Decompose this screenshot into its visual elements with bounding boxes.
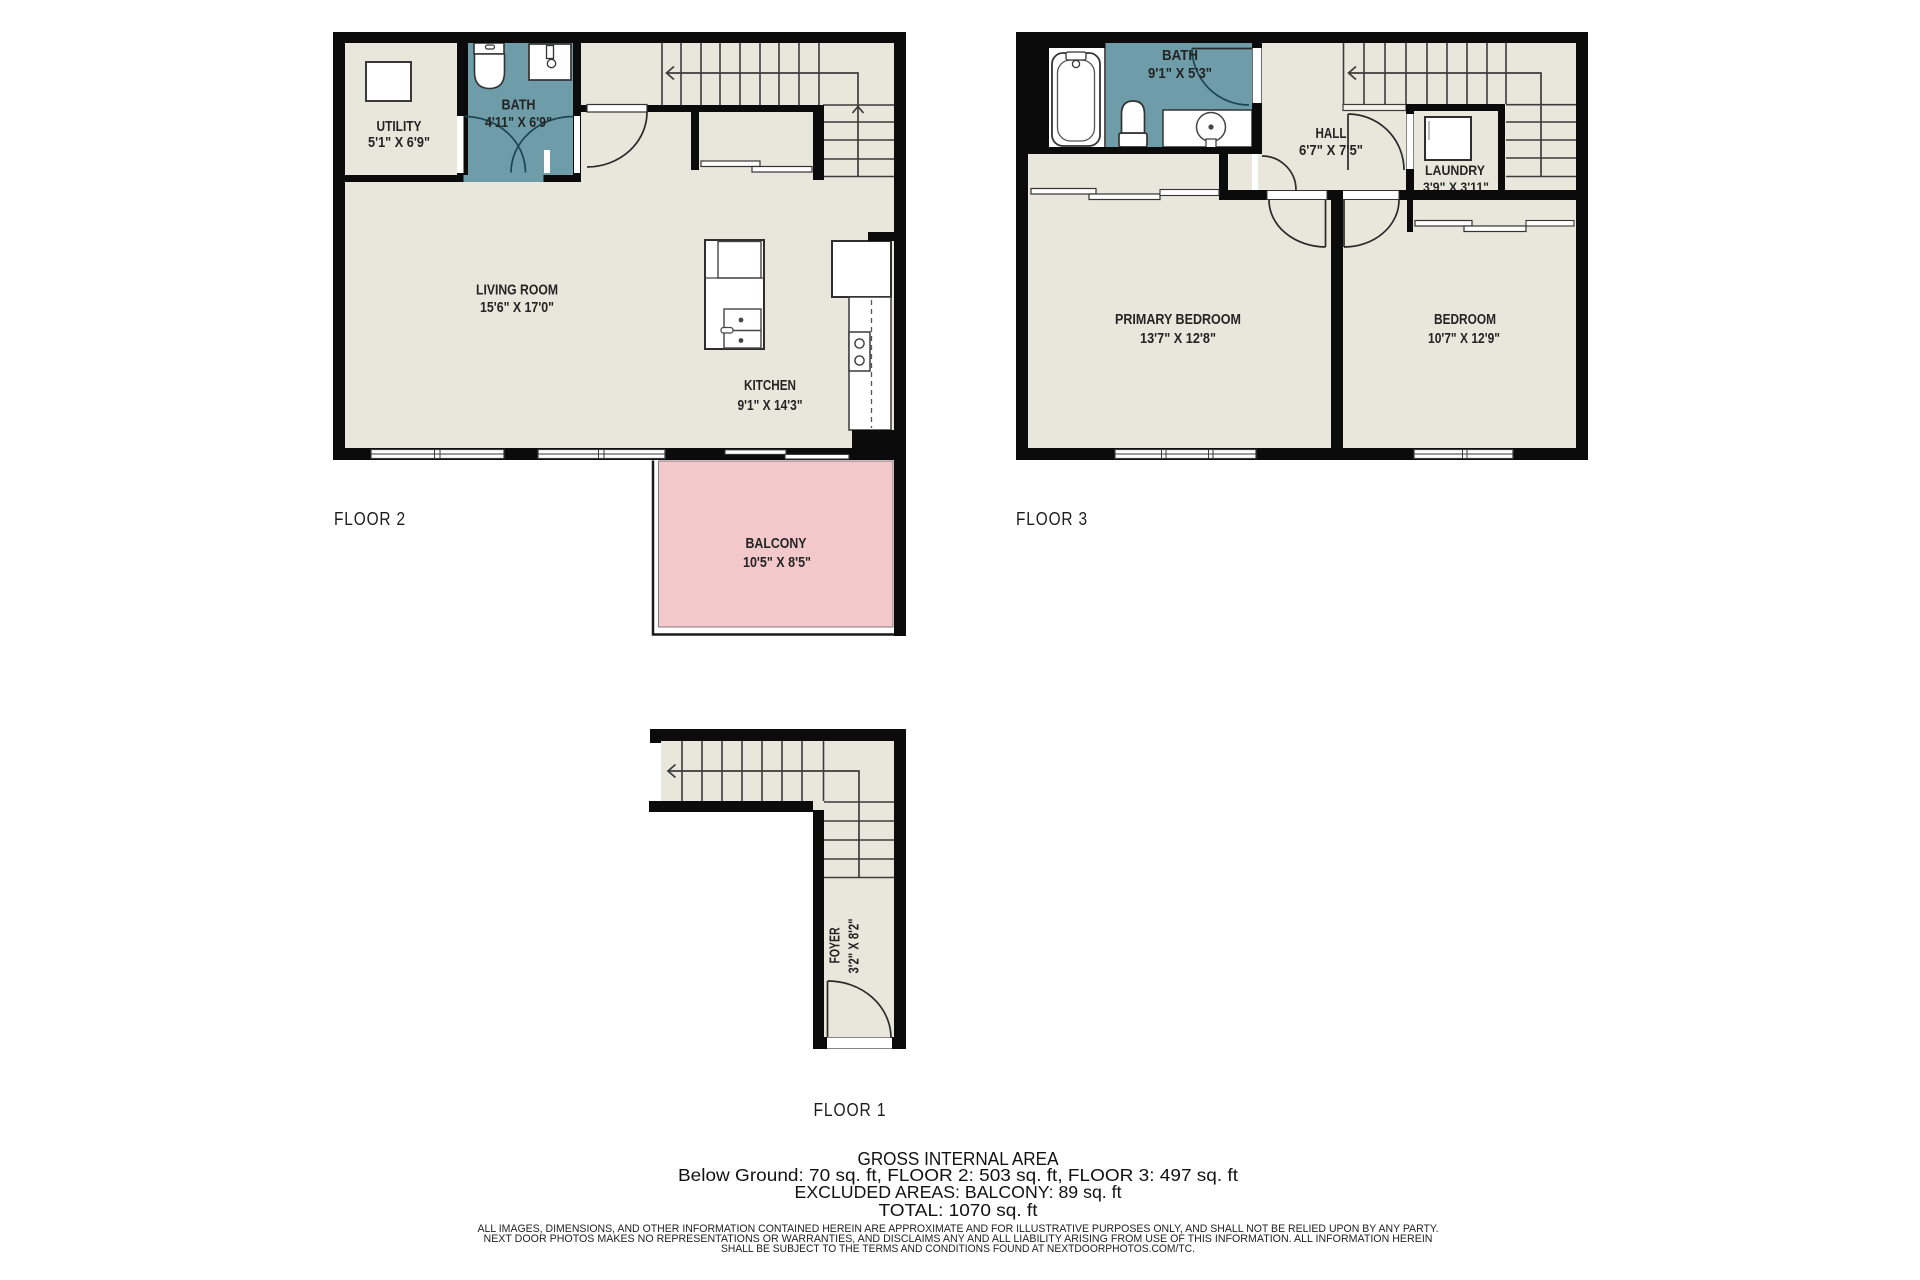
svg-text:UTILITY: UTILITY [377,119,422,135]
svg-text:HALL: HALL [1316,126,1347,142]
svg-text:BALCONY: BALCONY [746,536,807,552]
svg-text:FLOOR 1: FLOOR 1 [814,1100,887,1120]
svg-text:3'2" X 8'2": 3'2" X 8'2" [847,919,863,974]
svg-text:BATH: BATH [502,98,536,114]
svg-text:PRIMARY BEDROOM: PRIMARY BEDROOM [1115,312,1241,328]
svg-text:LAUNDRY: LAUNDRY [1425,162,1486,178]
svg-text:13'7" X 12'8": 13'7" X 12'8" [1140,331,1216,347]
svg-text:5'1" X 6'9": 5'1" X 6'9" [368,135,430,151]
svg-text:FLOOR 2: FLOOR 2 [334,509,406,529]
svg-text:EXCLUDED AREAS: BALCONY: 89 sq: EXCLUDED AREAS: BALCONY: 89 sq. ft [795,1182,1122,1202]
svg-text:9'1" X 14'3": 9'1" X 14'3" [738,398,803,414]
svg-text:TOTAL: 1070 sq. ft: TOTAL: 1070 sq. ft [879,1200,1038,1220]
svg-text:6'7" X 7'5": 6'7" X 7'5" [1299,143,1363,159]
svg-text:BEDROOM: BEDROOM [1434,312,1496,328]
svg-text:BATH: BATH [1162,48,1198,64]
svg-text:10'7" X 12'9": 10'7" X 12'9" [1428,331,1500,347]
svg-text:9'1" X 5'3": 9'1" X 5'3" [1148,66,1212,82]
svg-text:LIVING ROOM: LIVING ROOM [476,283,558,299]
svg-text:KITCHEN: KITCHEN [744,378,796,394]
svg-text:15'6" X 17'0": 15'6" X 17'0" [480,300,554,316]
svg-text:FOYER: FOYER [828,927,844,963]
svg-text:SHALL BE SUBJECT TO THE TERMS: SHALL BE SUBJECT TO THE TERMS AND CONDIT… [721,1243,1195,1255]
svg-text:10'5" X 8'5": 10'5" X 8'5" [743,555,811,571]
svg-text:4'11" X 6'9": 4'11" X 6'9" [485,115,552,131]
svg-text:FLOOR 3: FLOOR 3 [1016,509,1088,529]
